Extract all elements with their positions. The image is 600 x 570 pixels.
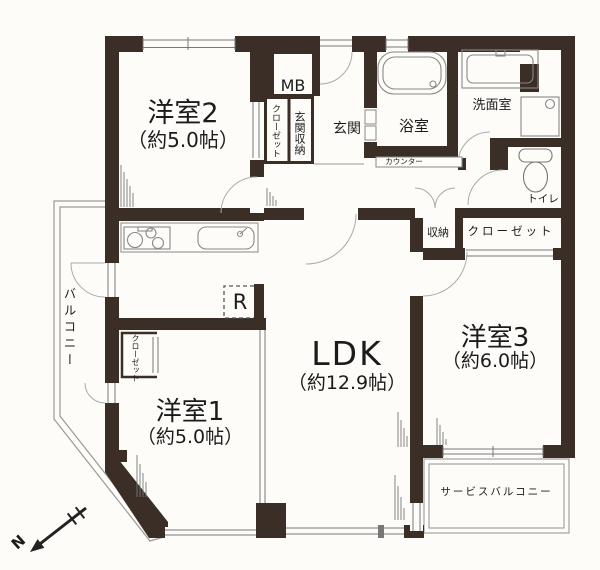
refrigerator-label: R bbox=[226, 291, 254, 313]
meter-box-label: MB bbox=[272, 78, 314, 95]
room3-closet-label: クローゼット bbox=[463, 225, 559, 237]
entry-label: 玄関 bbox=[322, 122, 372, 137]
room1-size: （約5.0帖） bbox=[115, 428, 265, 448]
north-arrow-icon bbox=[30, 507, 86, 552]
kitchen-sink-icon bbox=[198, 227, 254, 249]
storage-label: 収納 bbox=[418, 227, 458, 239]
gas-stove-icon bbox=[124, 227, 170, 249]
bathtub-icon bbox=[378, 52, 446, 94]
room3-size: （約6.0帖） bbox=[420, 352, 570, 372]
room2-closet-label: クローゼット bbox=[270, 100, 279, 162]
room1-closet-label: クローゼット bbox=[131, 334, 139, 376]
ldk-size: （約12.9帖） bbox=[272, 374, 422, 394]
floorplan: 洋室2 （約5.0帖） MB クローゼット 玄関収納 玄関 浴室 カウンター 洗… bbox=[0, 0, 600, 570]
room2-size: （約5.0帖） bbox=[108, 130, 258, 151]
window-mullion bbox=[378, 525, 384, 538]
washing-machine-pan-icon bbox=[521, 97, 559, 136]
room3-name: 洋室3 bbox=[420, 325, 570, 352]
room1-name: 洋室1 bbox=[115, 399, 265, 426]
service-balcony-label: サービスバルコニー bbox=[424, 487, 569, 498]
room2-name: 洋室2 bbox=[108, 100, 258, 128]
washroom-label: 洗面室 bbox=[462, 99, 522, 113]
entry-storage-label: 玄関収納 bbox=[294, 104, 305, 162]
counter-label: カウンター bbox=[377, 158, 431, 166]
balcony-label: バルコニー bbox=[62, 272, 75, 384]
bathroom-label: 浴室 bbox=[389, 119, 439, 135]
ldk-name: LDK bbox=[272, 337, 422, 372]
toilet-label: トイレ bbox=[522, 194, 564, 205]
toilet-icon bbox=[519, 149, 552, 192]
